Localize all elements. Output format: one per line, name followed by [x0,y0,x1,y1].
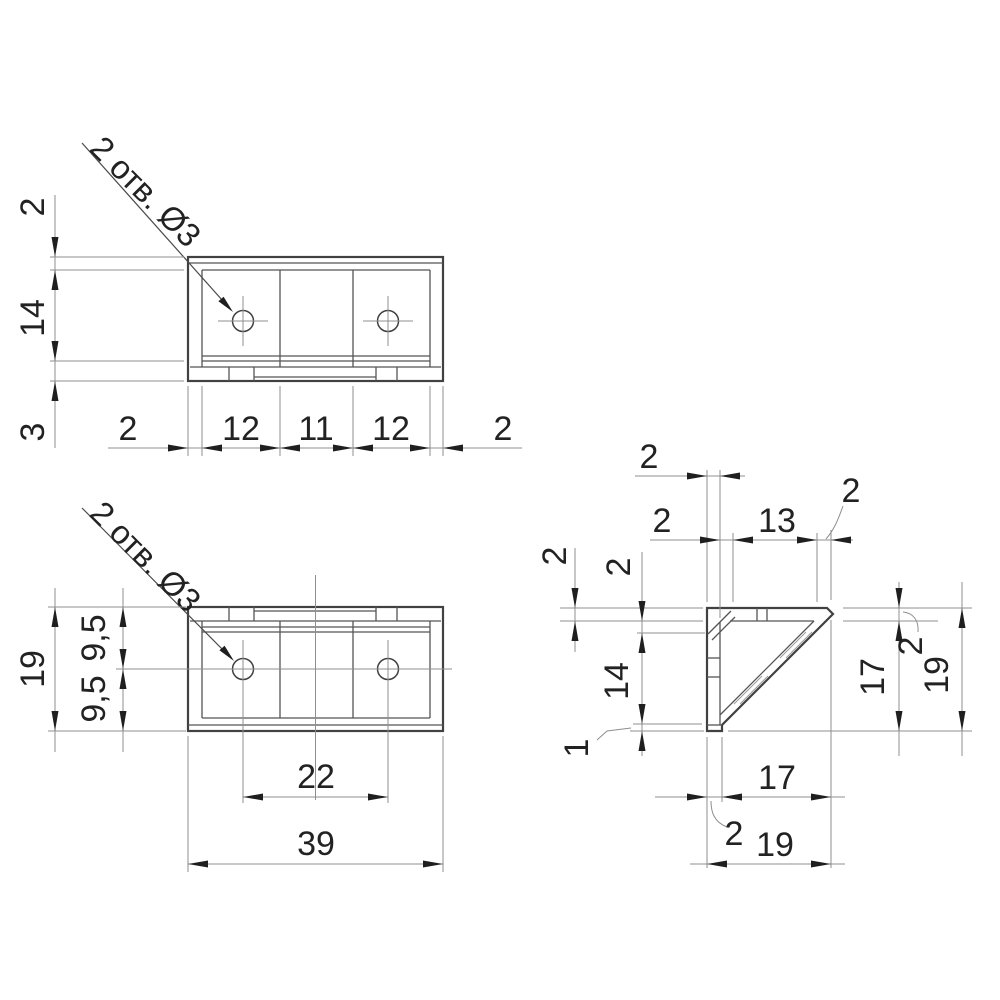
dim-side-left-2a: 2 [536,547,574,566]
dim-front-bottom-22: 22 [297,758,335,796]
dim-front-left-19: 19 [14,650,52,688]
dim-top-bottom-2a: 2 [119,410,138,448]
dim-top-left-3: 3 [14,423,52,442]
dim-top-bottom-12b: 12 [372,410,410,448]
dim-front-left-95b: 9,5 [75,675,113,722]
top-view: 2 отв. Ø3 2 14 3 2 12 11 12 2 [14,129,522,456]
dim-side-bottom-17: 17 [758,759,796,797]
top-view-outline [188,257,443,381]
dim-side-bottom-2: 2 [725,815,744,853]
dim-side-row2-2: 2 [653,502,672,540]
dim-side-right-19: 19 [918,656,956,694]
dim-top-bottom-2b: 2 [494,410,513,448]
dim-top-bottom-11: 11 [298,410,333,448]
dim-side-left-2b: 2 [600,558,638,577]
dim-side-left-14: 14 [598,662,636,700]
dim-top-left-14: 14 [14,299,52,337]
dim-side-right-17: 17 [854,658,892,696]
dim-side-top-2: 2 [640,438,659,476]
side-foot-leader [597,728,631,740]
dim-side-left-1: 1 [558,739,596,758]
side-chamfer-leader-top [826,506,843,539]
dim-top-left-2: 2 [14,198,52,217]
dim-side-row2-13: 13 [758,502,796,540]
technical-drawing: 2 отв. Ø3 2 14 3 2 12 11 12 2 [0,0,1000,1000]
dim-side-bottom-19: 19 [756,826,794,864]
front-view-callout: 2 отв. Ø3 [83,494,208,619]
front-view: 2 отв. Ø3 19 9,5 9,5 22 39 [14,494,452,872]
side-flange-leader-right [903,612,918,632]
dim-front-left-95a: 9,5 [75,614,113,661]
dim-top-bottom-12a: 12 [222,410,260,448]
dim-side-row2-2b: 2 [842,472,861,510]
side-view: 2 2 13 2 2 2 14 1 [536,438,972,868]
drawing-canvas: 2 отв. Ø3 2 14 3 2 12 11 12 2 [0,0,1000,1000]
dim-front-bottom-39: 39 [297,825,335,863]
dim-side-right-2: 2 [892,637,930,656]
top-view-callout: 2 отв. Ø3 [83,129,208,254]
